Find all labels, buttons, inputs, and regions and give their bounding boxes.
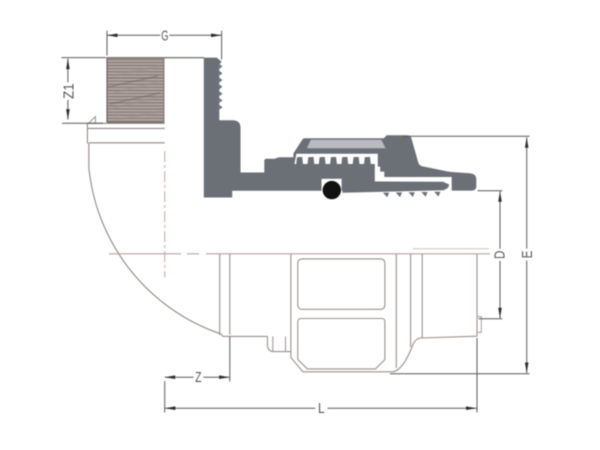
svg-text:Z: Z — [195, 368, 201, 385]
svg-text:E: E — [518, 251, 535, 259]
svg-text:Z1: Z1 — [61, 83, 78, 99]
svg-text:D: D — [491, 250, 508, 259]
svg-text:L: L — [318, 400, 325, 417]
svg-text:G: G — [161, 27, 168, 44]
